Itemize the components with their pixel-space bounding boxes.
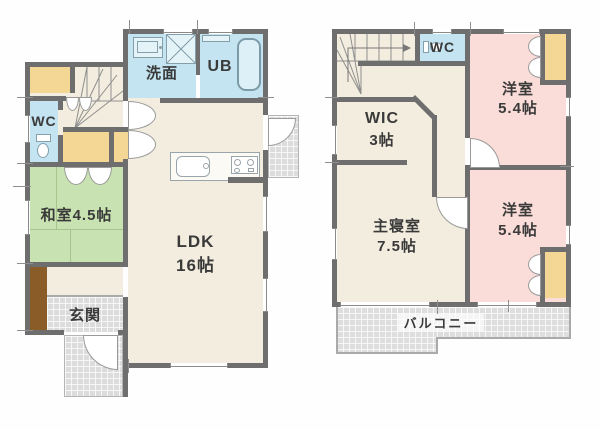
window (566, 97, 571, 117)
wall (358, 61, 470, 66)
wall (332, 29, 337, 307)
label-yoshitsu-north-size: 5.4帖 (470, 99, 566, 116)
window (566, 225, 571, 245)
floor-plan-canvas: 洗面 UB WC 和室4.5帖 LDK 16帖 玄関 (0, 0, 600, 429)
label-balcony: バルコニー (398, 314, 484, 331)
dimension-tick (414, 22, 415, 36)
label-yoshitsu-south: 洋室 (470, 201, 566, 218)
edge-line (336, 352, 438, 354)
window (503, 29, 540, 34)
dimension-tick (325, 97, 339, 98)
label-wic: WIC (332, 110, 432, 128)
window (432, 29, 452, 34)
edge-line (569, 307, 571, 339)
closet-north (545, 34, 566, 80)
floor-2f-plan: バルコニー WC 洋室 5.4帖 WIC 3帖 主寝室 7.5帖 洋室 5.4帖 (0, 0, 600, 429)
edge-line (336, 307, 338, 354)
label-wc-2f: WC (420, 38, 465, 56)
wall (332, 160, 407, 165)
dimension-tick (560, 166, 574, 167)
dimension-tick (437, 300, 438, 314)
label-yoshitsu-south-size: 5.4帖 (470, 221, 566, 238)
dimension-tick (325, 162, 339, 163)
dimension-tick (470, 22, 471, 36)
edge-line (437, 337, 571, 339)
label-yoshitsu-north: 洋室 (470, 80, 566, 97)
wall (432, 115, 437, 197)
label-shinshitsu: 主寝室 (332, 217, 462, 234)
label-wic-size: 3帖 (332, 131, 432, 148)
closet-south (545, 252, 566, 298)
wall (332, 97, 417, 102)
wall (566, 29, 571, 307)
edge-line (436, 337, 438, 354)
label-shinshitsu-size: 7.5帖 (332, 237, 462, 254)
dimension-tick (508, 300, 509, 312)
